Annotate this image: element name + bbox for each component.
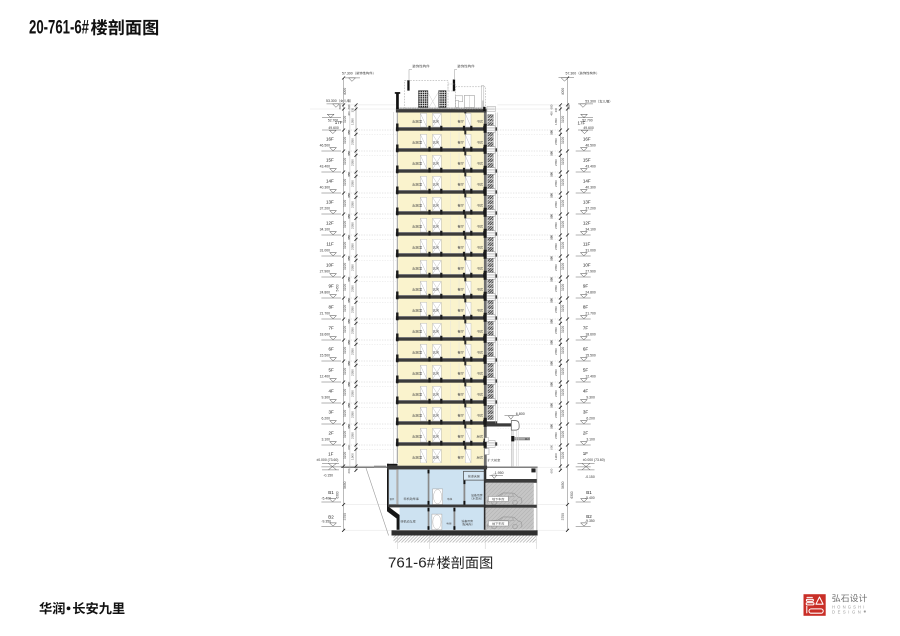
svg-text:2350: 2350 <box>554 390 558 397</box>
svg-text:2350: 2350 <box>351 411 355 418</box>
svg-text:7F: 7F <box>583 326 589 331</box>
svg-text:27.900: 27.900 <box>320 270 330 274</box>
svg-text:17F: 17F <box>578 121 586 126</box>
svg-text:1350: 1350 <box>351 118 355 125</box>
svg-text:6.200: 6.200 <box>322 417 331 421</box>
svg-text:150: 150 <box>347 382 351 387</box>
svg-text:3100: 3100 <box>561 284 565 292</box>
svg-text:3100: 3100 <box>561 452 565 460</box>
svg-text:150: 150 <box>347 256 351 261</box>
svg-text:150: 150 <box>347 403 351 408</box>
svg-text:3100: 3100 <box>561 158 565 166</box>
svg-text:B1: B1 <box>586 490 592 495</box>
svg-text:57.300: 57.300 <box>342 71 353 75</box>
svg-text:4F: 4F <box>329 389 335 394</box>
svg-text:150: 150 <box>549 277 553 282</box>
svg-text:53.300: 53.300 <box>585 100 596 104</box>
svg-text:2350: 2350 <box>554 264 558 271</box>
svg-text:21.700: 21.700 <box>585 312 595 316</box>
svg-text:-9.350: -9.350 <box>585 519 595 523</box>
svg-text:5F: 5F <box>583 368 589 373</box>
svg-text:12.400: 12.400 <box>585 375 595 379</box>
svg-text:3100: 3100 <box>561 347 565 355</box>
svg-text:3100: 3100 <box>561 137 565 145</box>
svg-text:600: 600 <box>347 445 351 450</box>
svg-text:14F: 14F <box>326 179 334 184</box>
svg-text:3.100: 3.100 <box>586 438 595 442</box>
svg-text:6.200: 6.200 <box>586 417 595 421</box>
svg-text:2350: 2350 <box>351 201 355 208</box>
svg-text:761-6#: 761-6# <box>388 555 436 572</box>
svg-text:12F: 12F <box>326 221 334 226</box>
svg-text:31.000: 31.000 <box>320 249 330 253</box>
svg-text:600: 600 <box>549 468 553 473</box>
svg-text:300: 300 <box>352 108 355 113</box>
svg-text:150: 150 <box>549 172 553 177</box>
svg-text:3100: 3100 <box>343 431 347 439</box>
svg-text:150: 150 <box>347 277 351 282</box>
svg-text:3700: 3700 <box>343 513 347 521</box>
svg-text:3100: 3100 <box>561 326 565 334</box>
svg-text:3100: 3100 <box>343 410 347 418</box>
svg-text:150: 150 <box>549 130 553 135</box>
svg-text:1F: 1F <box>583 451 589 456</box>
svg-text:2350: 2350 <box>351 138 355 145</box>
svg-text:3100: 3100 <box>561 263 565 271</box>
svg-text:15F: 15F <box>583 158 591 163</box>
svg-text:43.400: 43.400 <box>585 165 595 169</box>
svg-text:400: 400 <box>549 111 553 116</box>
svg-text:150: 150 <box>347 172 351 177</box>
svg-text:2350: 2350 <box>351 390 355 397</box>
svg-text:40.300: 40.300 <box>320 186 330 190</box>
svg-text:±0.000 (73.60): ±0.000 (73.60) <box>583 458 605 462</box>
svg-text:9F: 9F <box>329 284 335 289</box>
svg-text:600: 600 <box>347 104 351 109</box>
svg-text:150: 150 <box>549 340 553 345</box>
svg-text:-1.950: -1.950 <box>493 471 503 475</box>
svg-text:9.300: 9.300 <box>586 396 595 400</box>
svg-text:150: 150 <box>347 130 351 135</box>
svg-text:12F: 12F <box>583 221 591 226</box>
svg-text:49.600: 49.600 <box>328 126 338 130</box>
svg-text:3100: 3100 <box>343 200 347 208</box>
svg-text:150: 150 <box>347 319 351 324</box>
svg-text:2350: 2350 <box>351 369 355 376</box>
svg-text:3100: 3100 <box>561 305 565 313</box>
svg-text:600: 600 <box>347 468 351 473</box>
svg-text:53.300: 53.300 <box>326 99 337 103</box>
svg-text:18.600: 18.600 <box>585 333 595 337</box>
svg-text:2F: 2F <box>329 431 335 436</box>
svg-text:3100: 3100 <box>561 410 565 418</box>
svg-text:4F: 4F <box>583 389 589 394</box>
svg-text:8F: 8F <box>583 305 589 310</box>
svg-text:13F: 13F <box>583 200 591 205</box>
svg-text:2350: 2350 <box>554 222 558 229</box>
svg-text:3100: 3100 <box>561 221 565 229</box>
svg-text:3100: 3100 <box>343 368 347 376</box>
svg-text:40.300: 40.300 <box>585 186 595 190</box>
svg-text:31.000: 31.000 <box>585 249 595 253</box>
svg-text:3100: 3100 <box>343 158 347 166</box>
svg-text:2350: 2350 <box>351 159 355 166</box>
svg-text:3100: 3100 <box>561 389 565 397</box>
svg-text:1900: 1900 <box>351 453 355 460</box>
svg-text:24.800: 24.800 <box>320 291 330 295</box>
svg-text:2350: 2350 <box>351 243 355 250</box>
svg-text:12.400: 12.400 <box>320 375 330 379</box>
svg-text:2350: 2350 <box>554 159 558 166</box>
svg-text:400: 400 <box>347 111 351 116</box>
svg-text:3100: 3100 <box>343 284 347 292</box>
svg-text:1F: 1F <box>328 451 334 456</box>
svg-text:3100: 3100 <box>343 305 347 313</box>
svg-text:13F: 13F <box>326 200 334 205</box>
svg-text:3100: 3100 <box>343 389 347 397</box>
svg-text:3100: 3100 <box>343 242 347 250</box>
svg-text:150: 150 <box>549 403 553 408</box>
svg-text:150: 150 <box>347 151 351 156</box>
svg-text:3100: 3100 <box>561 200 565 208</box>
svg-text:2350: 2350 <box>351 348 355 355</box>
svg-text:3100: 3100 <box>343 137 347 145</box>
svg-text:150: 150 <box>347 193 351 198</box>
svg-text:DESIGN: DESIGN <box>832 610 863 615</box>
svg-text:6.800: 6.800 <box>516 412 525 416</box>
svg-text:5450: 5450 <box>335 284 339 291</box>
svg-text:10F: 10F <box>583 263 591 268</box>
svg-text:16F: 16F <box>583 137 591 142</box>
svg-text:150: 150 <box>347 361 351 366</box>
svg-text:150: 150 <box>549 151 553 156</box>
svg-text:3100: 3100 <box>561 368 565 376</box>
svg-text:±0.000 (73.60): ±0.000 (73.60) <box>316 458 338 462</box>
svg-text:2350: 2350 <box>554 348 558 355</box>
svg-text:8F: 8F <box>329 305 335 310</box>
svg-text:150: 150 <box>549 361 553 366</box>
svg-text:5650: 5650 <box>343 481 347 489</box>
svg-text:3F: 3F <box>329 410 335 415</box>
svg-text:2350: 2350 <box>351 285 355 292</box>
svg-text:9.300: 9.300 <box>322 396 331 400</box>
svg-text:3700: 3700 <box>561 513 565 521</box>
svg-text:-0.150: -0.150 <box>585 475 595 479</box>
svg-text:150: 150 <box>347 340 351 345</box>
svg-text:20-761-6#: 20-761-6# <box>29 18 89 39</box>
svg-text:150: 150 <box>347 214 351 219</box>
svg-text:16F: 16F <box>326 137 334 142</box>
svg-text:3100: 3100 <box>343 263 347 271</box>
svg-text:37.200: 37.200 <box>585 207 595 211</box>
svg-text:9F: 9F <box>583 284 589 289</box>
svg-text:150: 150 <box>549 298 553 303</box>
svg-text:150: 150 <box>549 235 553 240</box>
svg-text:3100: 3100 <box>343 221 347 229</box>
svg-text:2350: 2350 <box>554 180 558 187</box>
svg-text:15.500: 15.500 <box>320 354 330 358</box>
svg-text:57.300: 57.300 <box>566 71 577 75</box>
svg-text:3100: 3100 <box>343 347 347 355</box>
svg-text:2350: 2350 <box>554 411 558 418</box>
svg-text:3F: 3F <box>583 410 589 415</box>
svg-text:2350: 2350 <box>554 369 558 376</box>
svg-text:2350: 2350 <box>554 327 558 334</box>
svg-text:6300: 6300 <box>335 491 339 498</box>
svg-text:-0.150: -0.150 <box>323 473 333 477</box>
svg-text:2350: 2350 <box>351 222 355 229</box>
svg-text:6F: 6F <box>583 347 589 352</box>
svg-text:2350: 2350 <box>351 432 355 439</box>
svg-text:34.100: 34.100 <box>585 228 595 232</box>
svg-text:2350: 2350 <box>351 306 355 313</box>
svg-text:21.700: 21.700 <box>320 312 330 316</box>
svg-text:3100: 3100 <box>561 116 565 124</box>
svg-text:2350: 2350 <box>554 201 558 208</box>
svg-text:3100: 3100 <box>561 179 565 187</box>
svg-text:1350: 1350 <box>554 118 558 125</box>
svg-text:150: 150 <box>347 235 351 240</box>
svg-text:15.500: 15.500 <box>585 354 595 358</box>
svg-text:7F: 7F <box>329 326 335 331</box>
svg-text:46.500: 46.500 <box>320 144 330 148</box>
svg-text:2350: 2350 <box>554 306 558 313</box>
svg-text:2350: 2350 <box>554 285 558 292</box>
svg-text:11F: 11F <box>326 242 334 247</box>
svg-text:5650: 5650 <box>561 481 565 489</box>
svg-text:3100: 3100 <box>343 326 347 334</box>
svg-text:17F: 17F <box>335 120 343 125</box>
svg-text:3100: 3100 <box>561 431 565 439</box>
svg-text:15F: 15F <box>326 158 334 163</box>
svg-text:150: 150 <box>549 319 553 324</box>
svg-text:2350: 2350 <box>351 180 355 187</box>
svg-text:600: 600 <box>567 104 571 109</box>
svg-text:150: 150 <box>549 214 553 219</box>
svg-text:3100: 3100 <box>343 179 347 187</box>
svg-text:2350: 2350 <box>554 432 558 439</box>
svg-text:M2: M2 <box>525 437 529 441</box>
svg-text:18.600: 18.600 <box>320 333 330 337</box>
svg-text:1900: 1900 <box>554 453 558 460</box>
svg-text:4000: 4000 <box>343 88 347 96</box>
svg-text:2F: 2F <box>583 431 589 436</box>
svg-text:150: 150 <box>347 298 351 303</box>
svg-text:10F: 10F <box>326 263 334 268</box>
svg-text:46.500: 46.500 <box>585 144 595 148</box>
svg-text:24.800: 24.800 <box>585 291 595 295</box>
svg-text:600: 600 <box>549 445 553 450</box>
svg-text:2350: 2350 <box>554 243 558 250</box>
svg-text:150: 150 <box>549 382 553 387</box>
svg-text:B1: B1 <box>328 490 334 495</box>
svg-text:5F: 5F <box>329 368 335 373</box>
svg-text:37.200: 37.200 <box>320 207 330 211</box>
svg-text:43.400: 43.400 <box>320 165 330 169</box>
svg-text:27.900: 27.900 <box>585 270 595 274</box>
svg-text:2350: 2350 <box>351 327 355 334</box>
svg-text:11F: 11F <box>583 242 591 247</box>
svg-text:34.100: 34.100 <box>320 228 330 232</box>
svg-text:2350: 2350 <box>351 264 355 271</box>
svg-text:150: 150 <box>347 424 351 429</box>
svg-text:6F: 6F <box>329 347 335 352</box>
svg-text:150: 150 <box>549 424 553 429</box>
svg-text:600: 600 <box>549 104 553 109</box>
svg-text:4000: 4000 <box>561 88 565 96</box>
svg-text:6300: 6300 <box>570 491 574 498</box>
svg-text:14F: 14F <box>583 179 591 184</box>
svg-text:2350: 2350 <box>554 138 558 145</box>
svg-text:150: 150 <box>549 193 553 198</box>
svg-text:3.100: 3.100 <box>322 438 331 442</box>
svg-text:3100: 3100 <box>343 452 347 460</box>
svg-text:300: 300 <box>555 108 558 113</box>
svg-text:3100: 3100 <box>343 116 347 124</box>
svg-text:3100: 3100 <box>561 242 565 250</box>
svg-text:49.600: 49.600 <box>583 126 593 130</box>
svg-text:150: 150 <box>549 256 553 261</box>
